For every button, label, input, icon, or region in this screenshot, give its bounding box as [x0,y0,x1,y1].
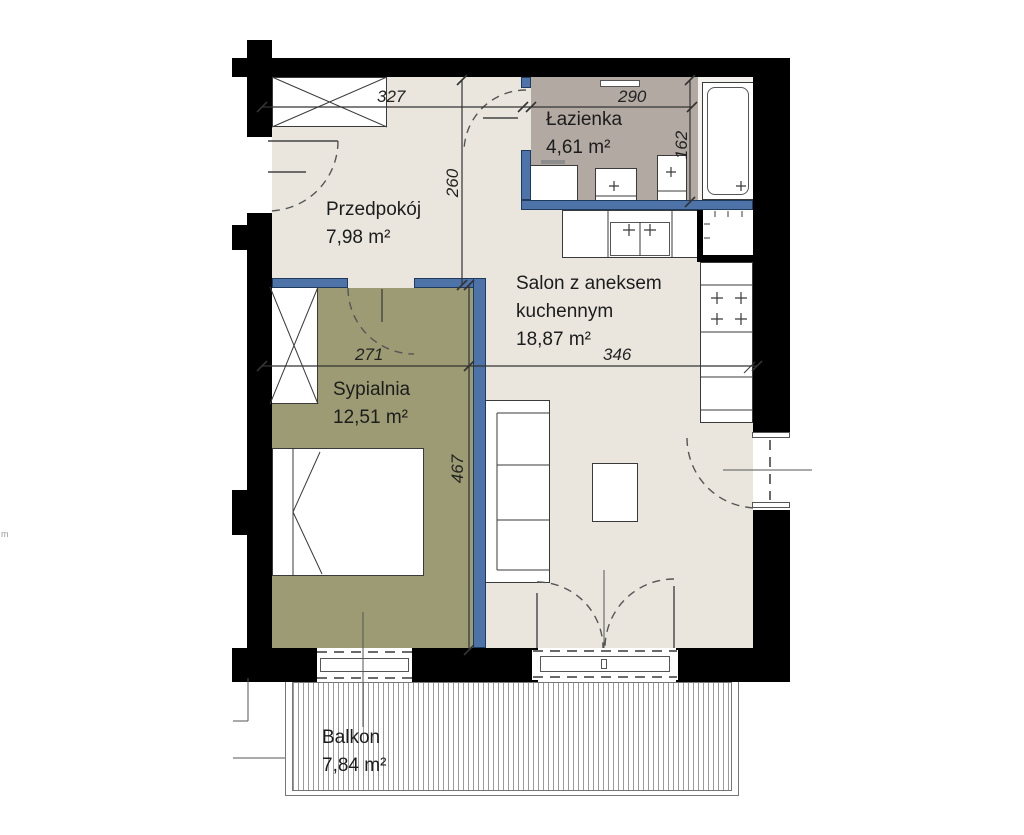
wall-top-stub [247,40,272,58]
wall-right-upper [753,77,790,432]
living-room-name-line2: kuchennym [516,298,662,326]
dim-bathroom-depth: 162 [672,131,692,159]
balcony-label: Balkon 7,84 m² [322,724,386,780]
bathroom-name: Łazienka [546,106,622,134]
dim-bedroom-depth: 467 [448,455,468,483]
dim-living-width: 346 [603,345,631,365]
living-room-name-line1: Salon z aneksem [516,270,662,298]
bathroom-radiator [600,80,640,87]
living-room-label: Salon z aneksem kuchennym 18,87 m² [516,270,662,354]
hallway-name: Przedpokój [326,196,421,224]
bathroom-area: 4,61 m² [546,134,622,162]
dim-bathroom-width: 290 [618,87,646,107]
partition-bedroom-top-right [414,278,476,288]
bathroom-washbasin [595,168,637,203]
living-window-frame-top [752,432,790,438]
living-window [753,432,790,510]
partition-bathroom-bottom [521,200,753,210]
living-window-frame-bottom [752,502,790,508]
bathroom-washer [530,165,578,203]
dim-hallway-width: 327 [377,87,405,107]
hallway-area: 7,98 m² [326,224,421,252]
balcony-area: 7,84 m² [322,752,386,780]
sofa [484,400,550,583]
bedroom-label: Sypialnia 12,51 m² [333,376,410,432]
wall-left-pier-2 [232,490,247,535]
coffee-table [592,463,638,522]
bedroom-wardrobe [270,287,318,404]
wall-left-pier-1 [232,225,247,250]
wall-bottom-left [232,648,317,682]
edge-artifact-label: m [1,529,9,539]
balcony-name: Balkon [322,724,386,752]
kitchen-counter-right [700,262,753,423]
bathroom-toilet [657,155,687,202]
bedroom-door-floor-strip [348,278,414,288]
floor-plan: Przedpokój 7,98 m² Łazienka 4,61 m² Salo… [0,0,1024,835]
bathtub-inner [707,87,749,195]
partition-bedroom-living [473,278,486,648]
kitchen-sink [610,222,670,256]
utility-shaft [703,210,753,255]
wall-top [232,58,790,77]
bathroom-door-floor-strip [521,88,531,150]
bedroom-name: Sypialnia [333,376,410,404]
partition-bathroom-left-bottom [521,150,531,200]
wall-left-lower [247,213,272,648]
partition-bedroom-top-left [272,278,348,288]
bedroom-window-frame [320,658,409,672]
bed [272,448,424,576]
wall-shaft-bottom [697,255,755,262]
partition-bathroom-left-top [521,77,531,88]
dim-hallway-depth: 260 [443,169,463,197]
bathroom-label: Łazienka 4,61 m² [546,106,622,162]
living-room-area: 18,87 m² [516,326,662,354]
wall-bottom-mid [412,648,538,682]
hallway-wardrobe [272,77,387,127]
bedroom-area: 12,51 m² [333,404,410,432]
wall-left-upper [247,77,272,137]
hallway-label: Przedpokój 7,98 m² [326,196,421,252]
balcony-door-handle [601,659,607,669]
wall-bottom-right [676,648,790,682]
wall-right-lower [753,510,790,648]
dim-bedroom-width: 271 [355,345,383,365]
